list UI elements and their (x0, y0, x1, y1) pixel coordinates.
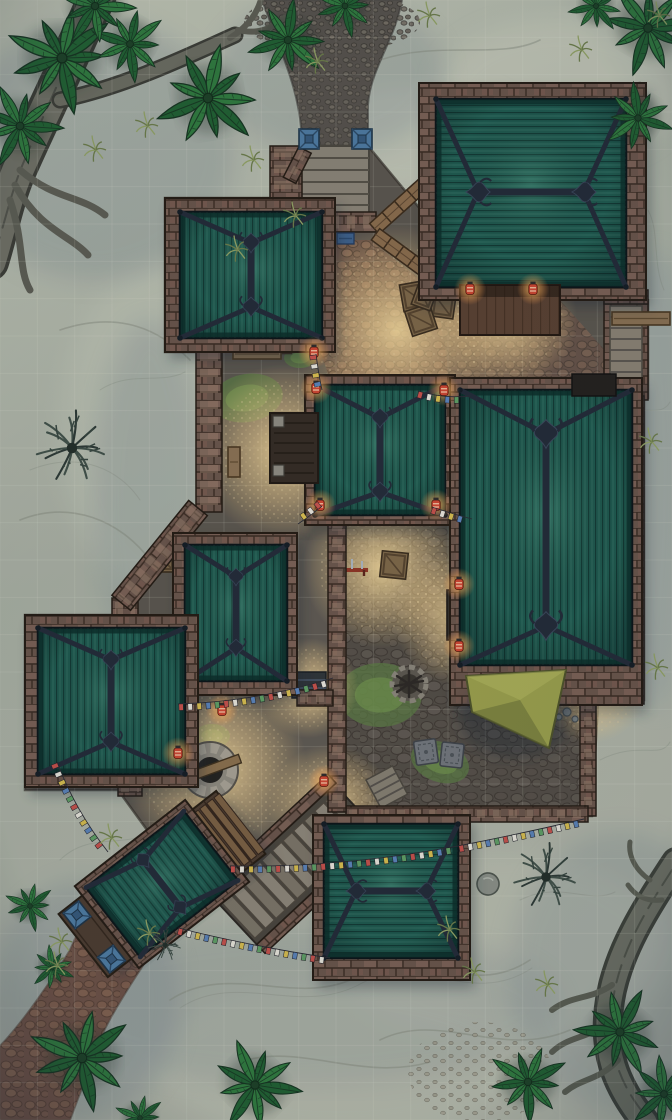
battle-map-canvas[interactable] (0, 0, 672, 1120)
cool-tint (0, 0, 672, 1120)
battle-map-stage (0, 0, 672, 1120)
